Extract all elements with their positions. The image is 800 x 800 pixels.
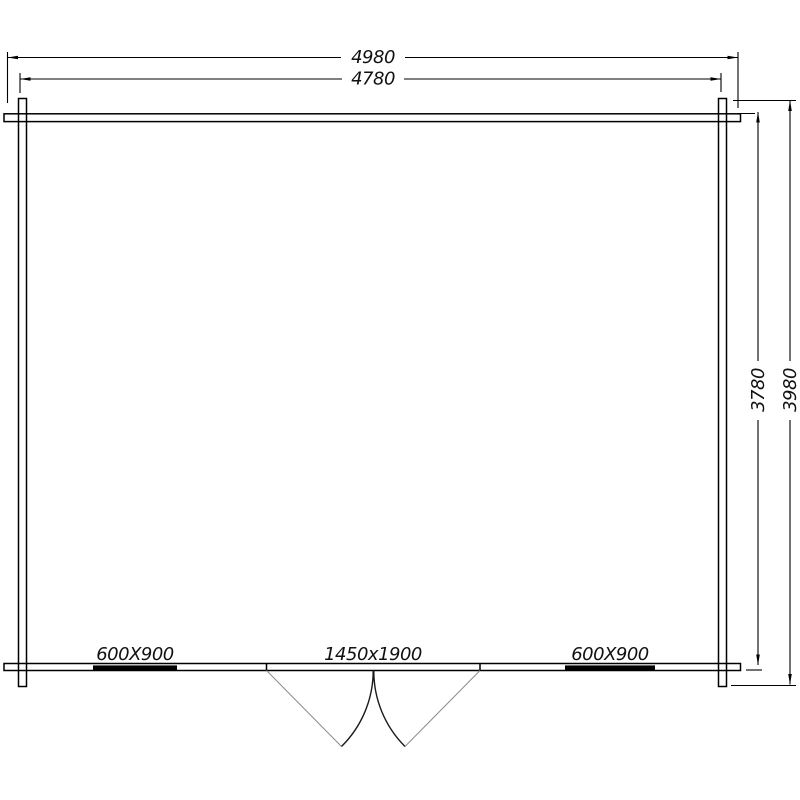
window-left-bar	[93, 665, 177, 670]
arrowhead-left	[8, 56, 19, 60]
floor-plan-drawing: 4980 4780 3780	[0, 0, 800, 800]
dim-top-outer-label: 4980	[351, 47, 395, 68]
dim-top-inner-label: 4780	[351, 69, 395, 90]
window-right-label: 600X900	[571, 644, 649, 665]
wall-left	[19, 99, 27, 687]
arrowhead-up	[756, 112, 760, 123]
dim-top-inner: 4780	[20, 69, 721, 94]
arrowhead-left	[20, 77, 31, 81]
window-right-bar	[565, 665, 655, 670]
dim-right-inner-label: 3780	[748, 368, 769, 412]
wall-top	[4, 114, 741, 122]
door-leaf-right	[405, 671, 480, 747]
opening-labels: 600X900 1450x1900 600X900	[96, 644, 649, 665]
door-leaf-left	[267, 671, 342, 747]
arrowhead-right	[711, 77, 722, 81]
walls	[4, 99, 741, 687]
arrowhead-down	[788, 674, 792, 685]
window-left-label: 600X900	[96, 644, 174, 665]
door-arc-right	[374, 671, 405, 747]
dim-right-outer-label: 3980	[780, 368, 800, 412]
arrowhead-up	[788, 101, 792, 112]
dim-right-inner: 3780	[737, 112, 769, 670]
door-swing	[267, 671, 481, 747]
door-label: 1450x1900	[324, 644, 422, 665]
door-arc-left	[342, 671, 374, 747]
arrowhead-down	[756, 655, 760, 666]
arrowhead-right	[728, 56, 739, 60]
floor-plan-page: 4980 4780 3780	[0, 0, 800, 800]
wall-right	[719, 99, 727, 687]
